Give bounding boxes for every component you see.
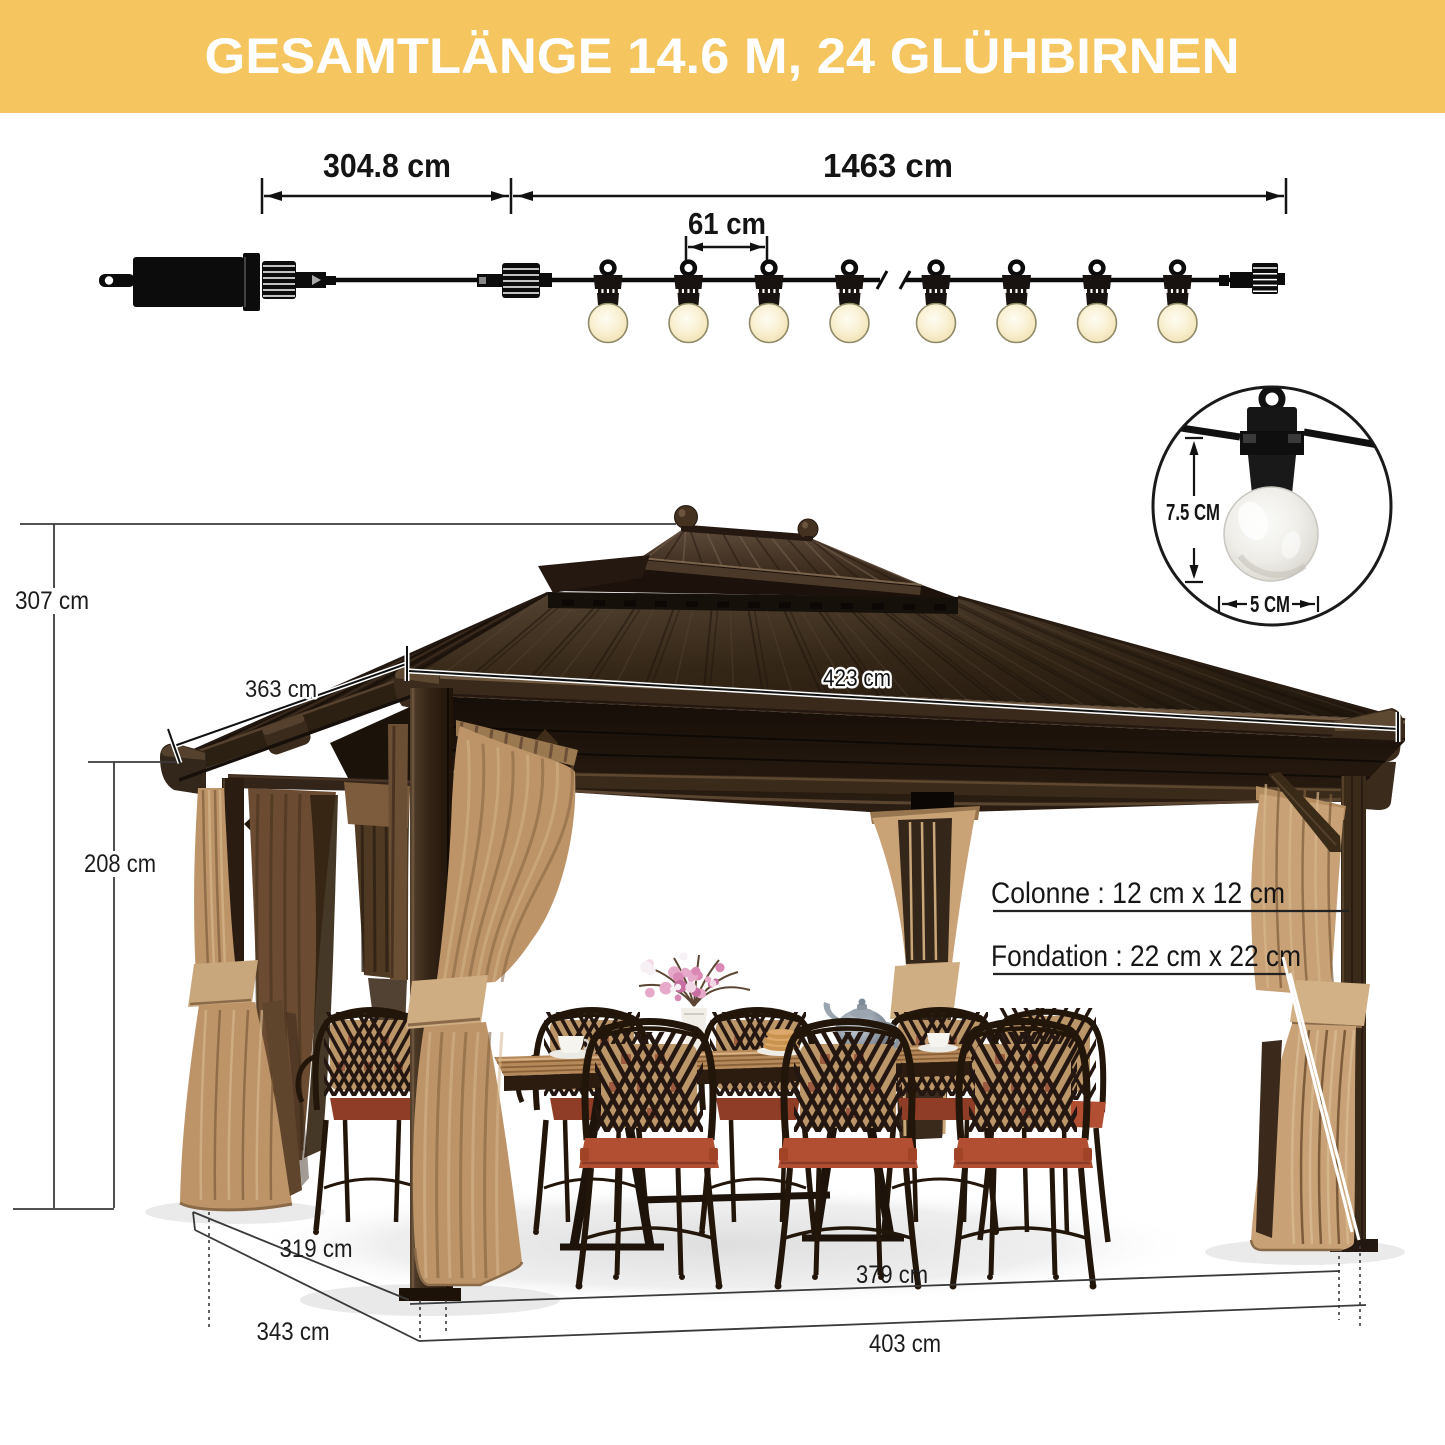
svg-text:5 CM: 5 CM: [1250, 591, 1290, 617]
svg-text:343 cm: 343 cm: [257, 1318, 330, 1346]
svg-text:Colonne : 12 cm x 12 cm: Colonne : 12 cm x 12 cm: [991, 877, 1285, 910]
svg-text:Fondation : 22 cm x 22 cm: Fondation : 22 cm x 22 cm: [991, 940, 1301, 973]
svg-text:7.5 CM: 7.5 CM: [1166, 499, 1220, 525]
svg-text:319 cm: 319 cm: [280, 1235, 353, 1263]
svg-text:423 cm: 423 cm: [823, 665, 891, 692]
svg-text:304.8 cm: 304.8 cm: [323, 147, 451, 184]
svg-text:403 cm: 403 cm: [869, 1330, 941, 1358]
svg-text:363 cm: 363 cm: [245, 676, 317, 703]
svg-text:208 cm: 208 cm: [84, 850, 156, 878]
svg-text:1463 cm: 1463 cm: [823, 147, 953, 184]
svg-text:379 cm: 379 cm: [856, 1261, 928, 1289]
svg-text:61 cm: 61 cm: [688, 206, 766, 241]
svg-text:307 cm: 307 cm: [15, 587, 89, 615]
svg-text:GESAMTLÄNGE 14.6 M, 24 GLÜHBIR: GESAMTLÄNGE 14.6 M, 24 GLÜHBIRNEN: [205, 28, 1240, 84]
